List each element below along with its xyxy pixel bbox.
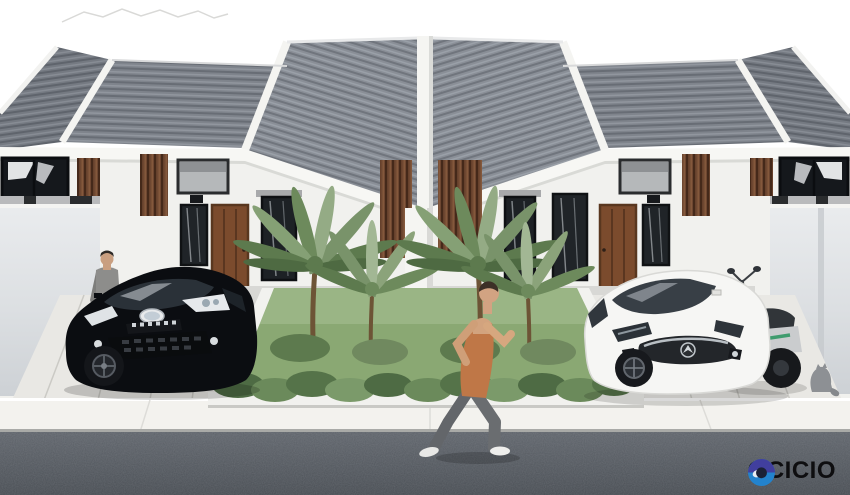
clerestory-window-right — [780, 158, 848, 198]
gray-window-left — [178, 160, 228, 193]
door-handle — [602, 248, 606, 252]
entry-door-right — [600, 205, 636, 291]
jogger-shoe — [490, 447, 510, 456]
black-car-wheel — [84, 346, 124, 386]
ocicio-logo-icon — [748, 459, 775, 486]
white-car-mirror — [712, 290, 721, 295]
scooter-mirror — [753, 266, 761, 272]
black-car-foglight — [210, 337, 218, 345]
center-party-wall — [417, 36, 433, 211]
curtain-window-left-1 — [181, 205, 207, 265]
vent — [190, 195, 203, 203]
white-car-wheel — [615, 349, 653, 387]
asphalt-road — [0, 432, 850, 495]
curtain-window-right-3 — [553, 194, 587, 280]
scooter-mirror — [727, 268, 735, 274]
vent — [647, 195, 660, 203]
clerestory-window-left — [2, 158, 68, 198]
black-car-mirror — [94, 293, 102, 298]
wood-slat-panel-tall — [140, 154, 168, 216]
watermark: OCICIO — [748, 459, 836, 483]
curtain-window-right-1 — [643, 205, 669, 265]
wood-slat-panel — [77, 158, 100, 196]
wood-slat-panel — [750, 158, 773, 196]
gray-window-right — [620, 160, 670, 193]
wood-slat-panel-tall — [682, 154, 710, 216]
architectural-rendering: OCICIO — [0, 0, 850, 495]
